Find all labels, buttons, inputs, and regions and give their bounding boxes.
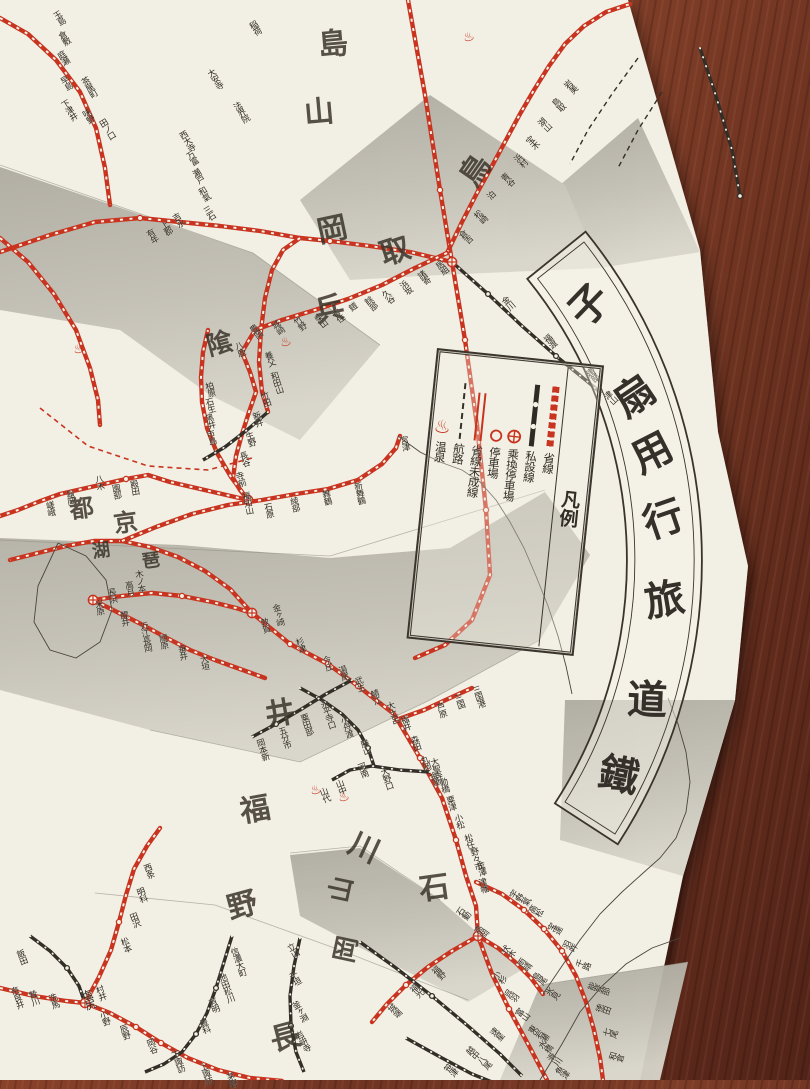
station-mark [486, 292, 491, 297]
legend-symbol-route [458, 357, 469, 443]
legend-entry-label: 省線 [541, 452, 555, 474]
station-mark [287, 641, 292, 646]
station-label: 八木 [93, 474, 104, 490]
station-mark [179, 593, 184, 598]
station-label: 長浜 [106, 587, 117, 603]
station-mark [65, 966, 70, 971]
station-mark [158, 1040, 163, 1045]
region-label: 琶 [135, 549, 163, 570]
station-mark [133, 1024, 138, 1029]
station-label: 龜岡 [64, 489, 75, 505]
region-label: 石 [406, 869, 454, 905]
station-mark [506, 1006, 511, 1011]
station-label: 垂井 [176, 644, 187, 660]
station-mark [214, 986, 219, 991]
region-label: 京 [105, 508, 143, 537]
station-label: 綾部 [288, 496, 300, 512]
transfer-station-mark [247, 608, 256, 617]
station-label: 關原 [157, 633, 168, 649]
station-mark [453, 837, 458, 842]
legend-entry-label: 省線未成線 [466, 444, 483, 497]
station-mark [116, 919, 121, 924]
region-label: 山 [292, 94, 338, 128]
station-label: 大垣 [198, 654, 209, 670]
station-label: 米原 [93, 599, 104, 615]
legend-entry-label: 航路 [451, 442, 465, 464]
rail-line [700, 48, 740, 196]
legend-entry-label: 私設線 [522, 450, 537, 483]
photo-of-fan-map: 島山岡取鳥兵隂都京湖琶井福川石山岡野長玉島倉敷庭瀬早島茶屋町下津井味野田ノ口稲荷… [0, 0, 810, 1080]
region-label: 湖 [85, 539, 113, 560]
station-label: 舞鶴 [320, 489, 332, 505]
legend-entry-label: 乘換停車場 [502, 448, 519, 501]
station-label: 園部 [110, 483, 121, 499]
station-mark [430, 994, 435, 999]
transfer-station-mark [447, 257, 456, 266]
legend-entry-label: 停車場 [486, 446, 501, 479]
title-banner-char: 道 [626, 667, 668, 727]
fan-map-graphic [0, 0, 810, 1080]
region-label: 島 [306, 26, 352, 60]
station-mark [137, 215, 142, 220]
station-label: 石原 [262, 502, 274, 518]
station-mark [437, 187, 442, 192]
station-mark [194, 1032, 199, 1037]
station-label: 殿田 [128, 479, 139, 495]
legend-entry-label: 温泉 [433, 440, 447, 462]
station-mark [554, 354, 559, 359]
station-label: 嵯峨 [44, 500, 55, 516]
station-mark [738, 194, 743, 199]
station-label: 高月 [123, 580, 134, 596]
station-label: 宮津 [398, 435, 410, 451]
legend-box: 凡例 省線私設線乘換停車場停車場省線未成線航路♨温泉 [406, 348, 604, 656]
station-label: 醒井 [118, 610, 129, 626]
station-mark [462, 337, 467, 342]
